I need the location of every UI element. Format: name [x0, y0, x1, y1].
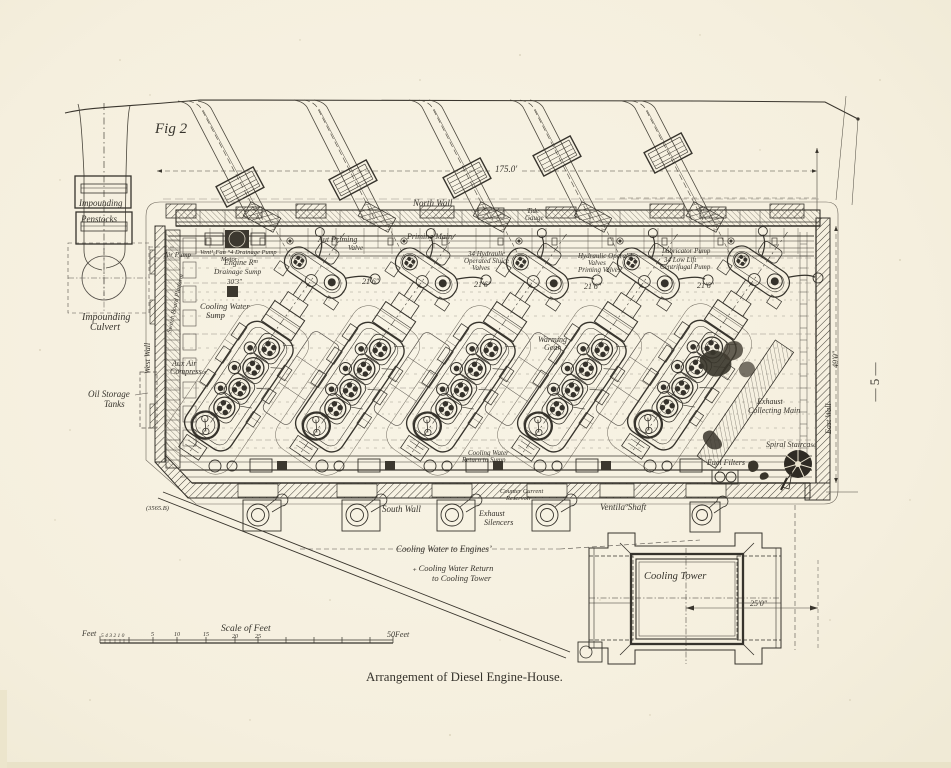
svg-text:Tanks: Tanks: [104, 399, 125, 409]
svg-text:Air Pump: Air Pump: [163, 251, 192, 259]
svg-text:25: 25: [255, 634, 261, 640]
svg-text:Engine Rm: Engine Rm: [223, 258, 259, 267]
svg-text:175.0′: 175.0′: [495, 164, 518, 174]
svg-text:Vent¹₀Fan °4 Drainage Pump: Vent¹₀Fan °4 Drainage Pump: [200, 249, 277, 256]
svg-text:Priming Valves: Priming Valves: [577, 266, 621, 274]
svg-text:Counter Current: Counter Current: [500, 488, 543, 495]
svg-text:Cooling Water to Engines’: Cooling Water to Engines’: [396, 544, 492, 554]
svg-text:Gauge: Gauge: [525, 214, 544, 222]
svg-text:(3565.B): (3565.B): [146, 505, 169, 512]
svg-text:Exhaust: Exhaust: [478, 509, 506, 518]
svg-text:Spiral Staircase: Spiral Staircase: [766, 440, 816, 449]
svg-text:49′0″: 49′0″: [831, 350, 840, 368]
svg-text:South Wall: South Wall: [382, 504, 421, 514]
svg-text:Drainage Sump: Drainage Sump: [213, 267, 262, 276]
svg-text:Sump: Sump: [206, 310, 225, 320]
svg-text:30′3″: 30′3″: [226, 278, 242, 286]
svg-text:VentilaºShaft: VentilaºShaft: [600, 502, 647, 512]
svg-text:₊ Cooling Water Return: ₊ Cooling Water Return: [412, 563, 493, 573]
svg-text:Priming Main: Priming Main: [406, 232, 452, 241]
svg-text:Return to Sump: Return to Sump: [461, 456, 506, 464]
svg-text:to Cooling Tower: to Cooling Tower: [432, 573, 492, 583]
svg-text:5 4 3 2 1 0: 5 4 3 2 1 0: [101, 632, 125, 639]
svg-text:Exhaust: Exhaust: [756, 397, 784, 406]
svg-text:North Wall: North Wall: [412, 198, 453, 208]
svg-text:Collecting Main: Collecting Main: [748, 406, 800, 415]
svg-text:Arrangement of Diesel Engin: Arrangement of Diesel Engine-House.: [366, 670, 563, 684]
svg-text:Oil Storage: Oil Storage: [88, 389, 130, 399]
svg-text:Scale of Feet: Scale of Feet: [221, 623, 271, 634]
svg-text:Cooling Tower: Cooling Tower: [644, 571, 707, 582]
svg-text:Fuel Filters: Fuel Filters: [706, 458, 745, 467]
svg-text:25′0″: 25′0″: [750, 599, 768, 608]
svg-text:Valves: Valves: [472, 264, 490, 272]
svg-text:Impounding: Impounding: [78, 198, 123, 208]
svg-text:Culvert: Culvert: [90, 322, 120, 333]
svg-text:20: 20: [232, 634, 238, 640]
svg-text:Penstocks: Penstocks: [80, 214, 117, 224]
svg-text:— 5 —: — 5 —: [867, 362, 882, 403]
svg-text:21′6″: 21′6″: [474, 280, 492, 289]
svg-text:10: 10: [174, 632, 180, 638]
svg-text:15: 15: [203, 632, 209, 638]
svg-text:Reservoir: Reservoir: [505, 495, 532, 502]
svg-text:West Wall: West Wall: [143, 342, 152, 374]
svg-text:Silencers: Silencers: [484, 518, 513, 527]
svg-text:5: 5: [151, 632, 154, 638]
svg-text:50Feet: 50Feet: [387, 630, 410, 639]
svg-text:East Wall: East Wall: [824, 403, 833, 435]
svg-text:Valve: Valve: [348, 244, 363, 252]
svg-text:Fig 2: Fig 2: [154, 121, 188, 137]
svg-text:Feet: Feet: [81, 629, 97, 638]
